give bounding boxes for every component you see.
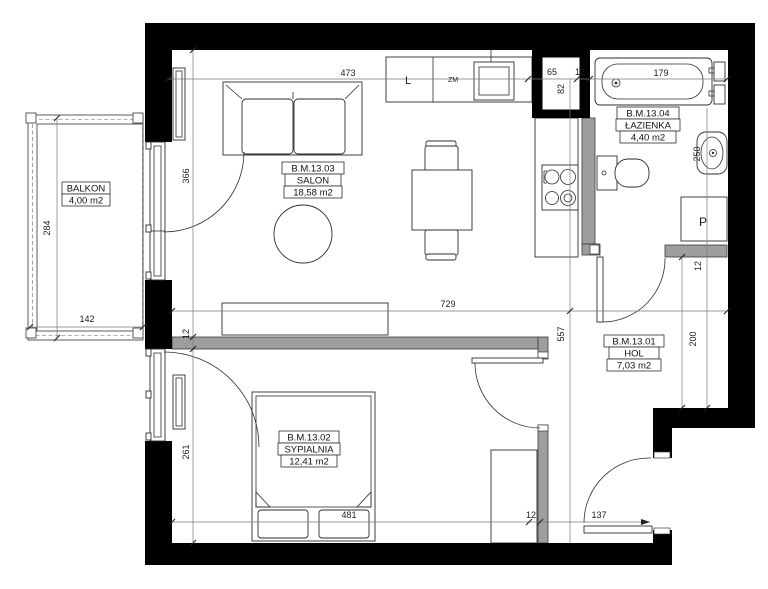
room-code: B.M.13.02 [287, 433, 330, 444]
bedroom-door-swing [475, 363, 540, 428]
dim-bed-width: 481 [341, 510, 356, 520]
kitchen-bath-wall [582, 118, 595, 244]
bedroom-door [472, 358, 543, 428]
room-area: 7,03 m2 [617, 361, 651, 372]
wardrobe [491, 450, 537, 543]
radiator [173, 375, 185, 429]
round-table [274, 205, 332, 263]
window-handle [146, 349, 151, 356]
dim-arrow [641, 519, 650, 525]
stove-icon [542, 165, 578, 210]
bedroom-east-wall [538, 425, 548, 543]
chair [425, 230, 458, 255]
floorplan-canvas: P [0, 0, 768, 589]
toilet [597, 156, 649, 190]
dim-bath-wall: 12 [693, 261, 703, 271]
kitchen-sink [474, 62, 514, 100]
room-name: HOL [624, 349, 644, 360]
door-jamb [654, 528, 670, 534]
wall-right [728, 23, 755, 428]
wall-bottom [145, 543, 672, 565]
floorplan-drawing: P [0, 0, 768, 589]
fridge-label: L [405, 75, 411, 87]
chair [425, 146, 458, 171]
bathroom-door [597, 257, 665, 322]
room-label-hol: B.M.13.01 HOL 7,03 m2 [604, 335, 664, 372]
balcony-door-swing [164, 152, 244, 232]
dim-entrance: 137 [591, 510, 606, 520]
pillow [258, 510, 308, 538]
bedroom-north-wall [172, 337, 538, 349]
room-label-balkon: BALKON 4,00 m2 [62, 182, 110, 207]
room-area: 4,40 m2 [631, 133, 665, 144]
entrance-door-leaf [584, 526, 652, 533]
room-name: BALKON [67, 184, 106, 195]
door-jamb [590, 245, 599, 254]
room-area: 4,00 m2 [69, 196, 103, 207]
window-handle [146, 433, 151, 440]
bathroom-south-wall [665, 245, 727, 257]
door-jamb [538, 352, 548, 358]
dim-bath-width: 179 [653, 68, 668, 78]
dim-salon-width: 473 [340, 68, 355, 78]
dim-shaft-wall: 12 [575, 67, 585, 77]
window-handle [146, 225, 151, 232]
bathroom-door-swing [603, 258, 665, 322]
room-area: 12,41 m2 [289, 457, 329, 468]
window-handle [146, 272, 151, 279]
bathroom-door-leaf [597, 257, 603, 322]
dim-shaft-width: 65 [547, 67, 557, 77]
dim-bedroom-wall: 12 [526, 510, 536, 520]
ventilation-shaft [542, 57, 580, 110]
bathtub [595, 58, 712, 105]
room-label-lazienka: B.M.13.04 ŁAZIENKA 4,40 m2 [616, 107, 680, 144]
dim-balcony-depth: 284 [42, 220, 52, 235]
wall-top [145, 23, 755, 50]
wall-left-middle [145, 280, 172, 349]
balcony-post [133, 328, 143, 338]
sideboard [222, 303, 388, 335]
dim-hol-depth: 200 [688, 331, 698, 346]
room-name: ŁAZIENKA [625, 121, 672, 132]
room-code: B.M.13.03 [291, 164, 334, 175]
chair [426, 254, 456, 260]
room-name: SALON [297, 176, 329, 187]
balcony-post [133, 113, 143, 123]
dim-interior-width: 729 [440, 299, 455, 309]
room-area: 18,58 m2 [293, 188, 333, 199]
dim-shaft-height: 82 [556, 84, 566, 94]
bedroom-window [146, 349, 259, 447]
window-handle [146, 391, 151, 398]
room-name: SYPIALNIA [284, 445, 334, 456]
room-label-sypialnia: B.M.13.02 SYPIALNIA 12,41 m2 [278, 431, 340, 468]
room-code: B.M.13.04 [626, 109, 669, 120]
dim-partition-wall: 12 [181, 329, 191, 339]
wall-left-upper [145, 23, 172, 142]
sofa [223, 82, 362, 155]
room-label-salon: B.M.13.03 SALON 18,58 m2 [282, 162, 344, 199]
dim-washbasin: 250 [692, 146, 702, 161]
dim-interior-depth: 557 [556, 326, 566, 341]
dim-salon-depth: 366 [181, 168, 191, 183]
dining-set [412, 141, 472, 260]
dim-balcony-width: 142 [79, 314, 94, 324]
dining-table [412, 170, 472, 230]
washing-machine-label: P [699, 215, 707, 229]
room-code: B.M.13.01 [612, 337, 655, 348]
wall-left-lower [145, 441, 172, 565]
window-handle [146, 142, 151, 149]
sink-label: ZM [448, 77, 458, 84]
salon-furniture [173, 68, 388, 335]
washing-machine: P [681, 197, 727, 241]
bedroom-door-leaf [472, 358, 543, 363]
balcony-door [146, 142, 244, 280]
dim-bedroom-window: 261 [181, 444, 191, 459]
balcony-post [26, 113, 36, 123]
balcony-railing-inner [37, 124, 143, 331]
door-jamb [654, 452, 670, 458]
